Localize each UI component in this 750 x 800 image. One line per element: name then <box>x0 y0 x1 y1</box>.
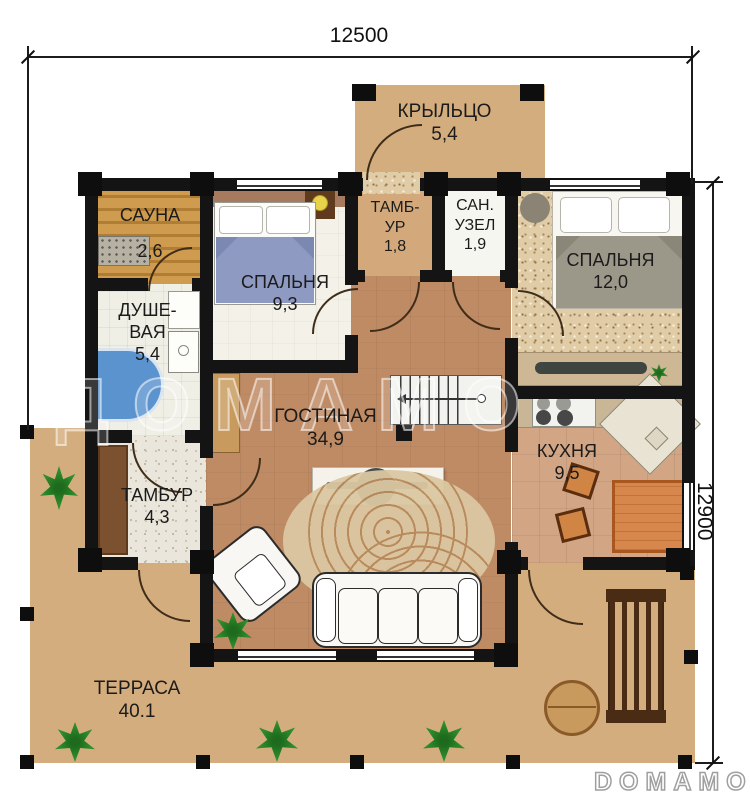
post <box>78 548 102 572</box>
wall <box>85 178 98 570</box>
watermark-logo: DOMAMO <box>594 768 750 797</box>
sofa-cushion <box>338 588 378 644</box>
burner <box>536 410 551 425</box>
pillow <box>266 206 310 234</box>
post <box>190 172 214 196</box>
post <box>497 550 521 574</box>
post <box>424 172 448 196</box>
wall <box>85 430 132 443</box>
wall <box>505 338 518 452</box>
wall <box>185 430 213 443</box>
bench-end <box>606 589 666 602</box>
kitchen-table <box>612 480 688 553</box>
dimension-height-label: 12900 <box>692 482 716 540</box>
floor-plan: 12500 12900 КРЫЛЬЦО 5,4 САУНА 2,6 СПАЛЬН… <box>0 0 750 800</box>
window <box>377 649 474 662</box>
dimension-line-right <box>712 182 714 763</box>
wall <box>85 178 237 191</box>
terrace-post <box>350 755 364 769</box>
window <box>237 178 322 191</box>
post <box>190 643 214 667</box>
window <box>550 178 640 191</box>
sofa-cushion <box>378 588 418 644</box>
post <box>494 643 518 667</box>
sofa-arm <box>458 578 478 642</box>
burner <box>557 410 573 426</box>
terrace-post <box>684 650 698 664</box>
label-wc: САН. УЗЕЛ 1,9 <box>443 196 507 255</box>
porch-post <box>352 84 376 101</box>
post <box>497 172 521 196</box>
bench-end <box>606 710 666 723</box>
label-tambour2: ТАМБУР 4,3 <box>112 485 202 529</box>
label-bedroom1: СПАЛЬНЯ 9,3 <box>225 272 345 316</box>
terrace-post <box>20 755 34 769</box>
wall <box>420 270 445 282</box>
label-kitchen: КУХНЯ 9,5 <box>512 441 622 485</box>
wall <box>200 178 213 458</box>
terrace-post <box>196 755 210 769</box>
terrace-post <box>678 755 692 769</box>
label-shower: ДУШЕ- ВАЯ 5,4 <box>100 300 195 366</box>
label-living: ГОСТИНАЯ 34,9 <box>258 405 393 451</box>
sofa-cushion <box>418 588 458 644</box>
extension-line <box>695 181 723 183</box>
post <box>666 172 690 196</box>
wall <box>518 386 695 399</box>
pillow <box>618 197 670 233</box>
label-porch: КРЫЛЬЦО 5,4 <box>382 100 507 146</box>
pouf <box>520 193 550 223</box>
post <box>338 172 362 196</box>
post <box>78 172 102 196</box>
label-sauna: САУНА 2,6 <box>100 205 200 263</box>
extension-line <box>691 46 693 184</box>
sofa-arm <box>316 578 336 642</box>
stair-arrow <box>392 394 406 404</box>
slatted-bench <box>608 591 664 721</box>
wall <box>85 278 148 291</box>
window <box>238 649 336 662</box>
terrace-post <box>506 755 520 769</box>
label-bedroom2: СПАЛЬНЯ 12,0 <box>548 250 673 294</box>
dimension-width-label: 12500 <box>309 24 409 48</box>
terrace-post <box>20 607 34 621</box>
wall <box>336 649 377 662</box>
porch-post <box>520 84 544 101</box>
wall <box>345 270 365 282</box>
label-terrace: ТЕРРАСА 40.1 <box>72 677 202 723</box>
stair-direction-line <box>398 398 480 400</box>
terrace-post <box>680 566 694 580</box>
wall <box>682 178 695 483</box>
desk-top <box>535 362 647 374</box>
table-seam <box>548 706 596 708</box>
wall <box>445 270 452 282</box>
pillow <box>219 206 263 234</box>
wall <box>192 278 213 291</box>
round-table <box>544 680 600 736</box>
dimension-line-top <box>27 56 693 58</box>
stair-start-marker <box>477 394 486 403</box>
wall <box>200 360 358 373</box>
wall-stub <box>396 425 412 441</box>
post <box>190 550 214 574</box>
pillow <box>560 197 612 233</box>
extension-line <box>27 46 29 430</box>
label-tambour1: ТАМБ- УР 1,8 <box>358 198 432 257</box>
